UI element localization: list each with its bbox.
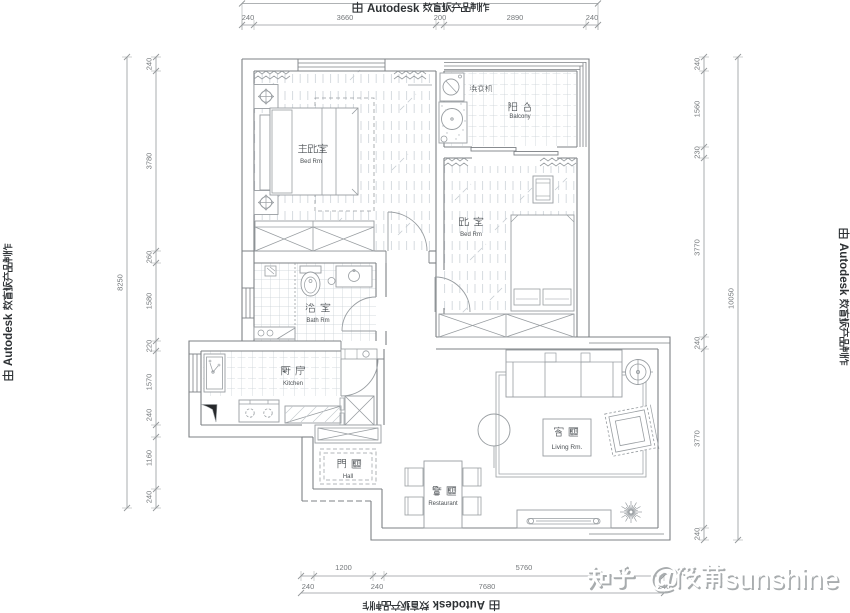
svg-text:2890: 2890 xyxy=(507,13,524,22)
svg-text:8250: 8250 xyxy=(116,274,125,291)
svg-text:240: 240 xyxy=(242,13,255,22)
svg-text:1570: 1570 xyxy=(145,374,154,391)
svg-text:1560: 1560 xyxy=(693,101,702,118)
svg-text:240: 240 xyxy=(145,491,154,504)
svg-text:Autodesk: Autodesk xyxy=(367,3,420,15)
svg-text:3780: 3780 xyxy=(145,153,154,170)
svg-text:@: @ xyxy=(648,559,679,594)
svg-text:sunshine: sunshine xyxy=(724,563,839,594)
svg-text:Balcony: Balcony xyxy=(509,114,530,120)
svg-text:Bath Rm: Bath Rm xyxy=(306,318,329,324)
svg-text:Autodesk: Autodesk xyxy=(3,313,15,366)
svg-text:240: 240 xyxy=(693,58,702,71)
svg-text:3660: 3660 xyxy=(337,13,354,22)
svg-text:Bed Rm: Bed Rm xyxy=(300,159,322,165)
svg-text:240: 240 xyxy=(693,528,702,541)
svg-text:230: 230 xyxy=(693,146,702,159)
svg-text:240: 240 xyxy=(586,13,599,22)
svg-text:Autodesk: Autodesk xyxy=(432,598,485,610)
svg-text:260: 260 xyxy=(145,251,154,264)
svg-text:Living Rm.: Living Rm. xyxy=(552,444,583,451)
svg-text:240: 240 xyxy=(371,582,384,591)
svg-text:Restaurant: Restaurant xyxy=(428,501,458,507)
svg-text:Hall: Hall xyxy=(343,474,353,480)
svg-text:Bed Rm: Bed Rm xyxy=(460,232,482,238)
svg-text:1200: 1200 xyxy=(335,563,352,572)
svg-text:3770: 3770 xyxy=(693,430,702,447)
svg-text:1160: 1160 xyxy=(145,450,154,466)
svg-text:240: 240 xyxy=(693,337,702,350)
svg-text:1580: 1580 xyxy=(145,293,154,310)
svg-text:200: 200 xyxy=(434,13,447,22)
svg-text:Autodesk: Autodesk xyxy=(837,243,849,296)
svg-text:5760: 5760 xyxy=(516,563,533,572)
svg-text:10050: 10050 xyxy=(727,288,736,309)
svg-text:240: 240 xyxy=(145,58,154,71)
svg-text:240: 240 xyxy=(145,409,154,422)
svg-text:220: 220 xyxy=(145,340,154,353)
svg-text:3770: 3770 xyxy=(693,239,702,256)
svg-text:7680: 7680 xyxy=(479,582,496,591)
svg-text:240: 240 xyxy=(302,582,315,591)
svg-text:Kitchen: Kitchen xyxy=(283,381,303,387)
